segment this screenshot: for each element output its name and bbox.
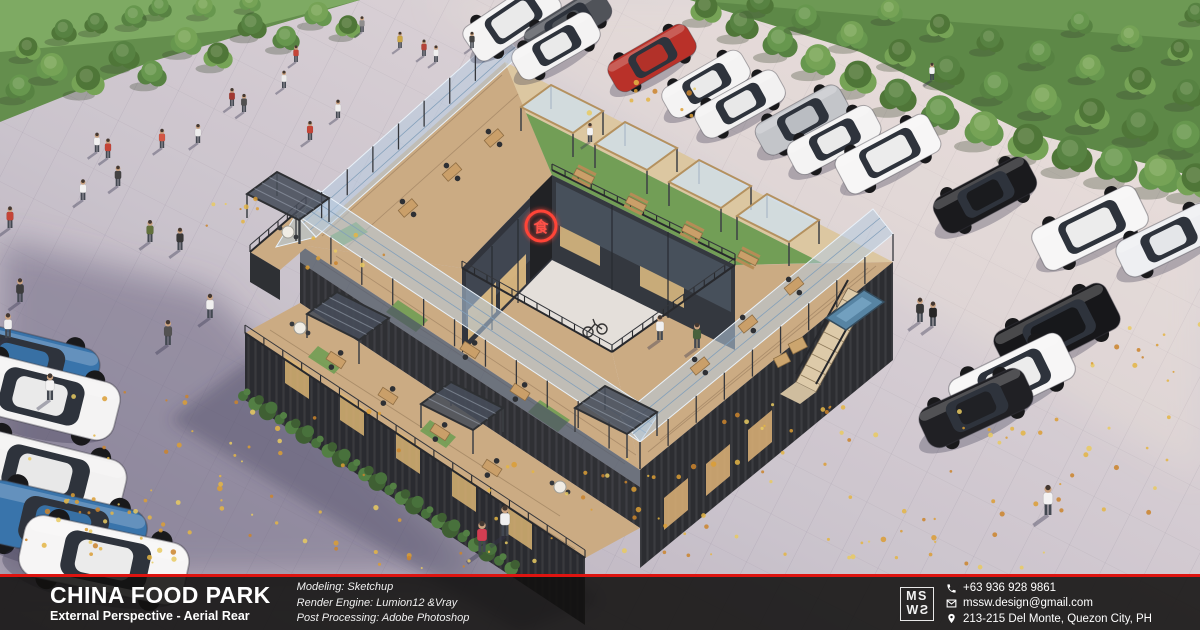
contact-email: mssw.design@gmail.com: [946, 596, 1152, 610]
render-viewport: 食: [0, 0, 1200, 630]
mssw-logo: MS SW: [900, 587, 934, 621]
street-address: 213-215 Del Monte, Quezon City, PH: [963, 612, 1152, 626]
render-credits: Modeling: Sketchup Render Engine: Lumion…: [297, 580, 470, 626]
contact-phone: +63 936 928 9861: [946, 581, 1152, 595]
credit-modeling: Modeling: Sketchup: [297, 580, 470, 595]
light-overlay: [0, 0, 1200, 630]
mail-icon: [946, 598, 957, 609]
credit-post-processing: Post Processing: Adobe Photoshop: [297, 611, 470, 626]
credit-render-engine: Render Engine: Lumion12 &Vray: [297, 596, 470, 611]
phone-icon: [946, 583, 957, 594]
email-address: mssw.design@gmail.com: [963, 596, 1093, 610]
view-subtitle: External Perspective - Aerial Rear: [50, 610, 271, 623]
pin-icon: [946, 613, 957, 624]
footer-bar: CHINA FOOD PARK External Perspective - A…: [0, 574, 1200, 630]
project-title-block: CHINA FOOD PARK External Perspective - A…: [50, 584, 271, 623]
contact-address: 213-215 Del Monte, Quezon City, PH: [946, 612, 1152, 626]
page-title: CHINA FOOD PARK: [50, 584, 271, 607]
contact-info: +63 936 928 9861 mssw.design@gmail.com 2…: [946, 581, 1152, 626]
phone-number: +63 936 928 9861: [963, 581, 1056, 595]
aerial-render: 食: [0, 0, 1200, 630]
logo-text-bottom: SW: [905, 604, 928, 617]
